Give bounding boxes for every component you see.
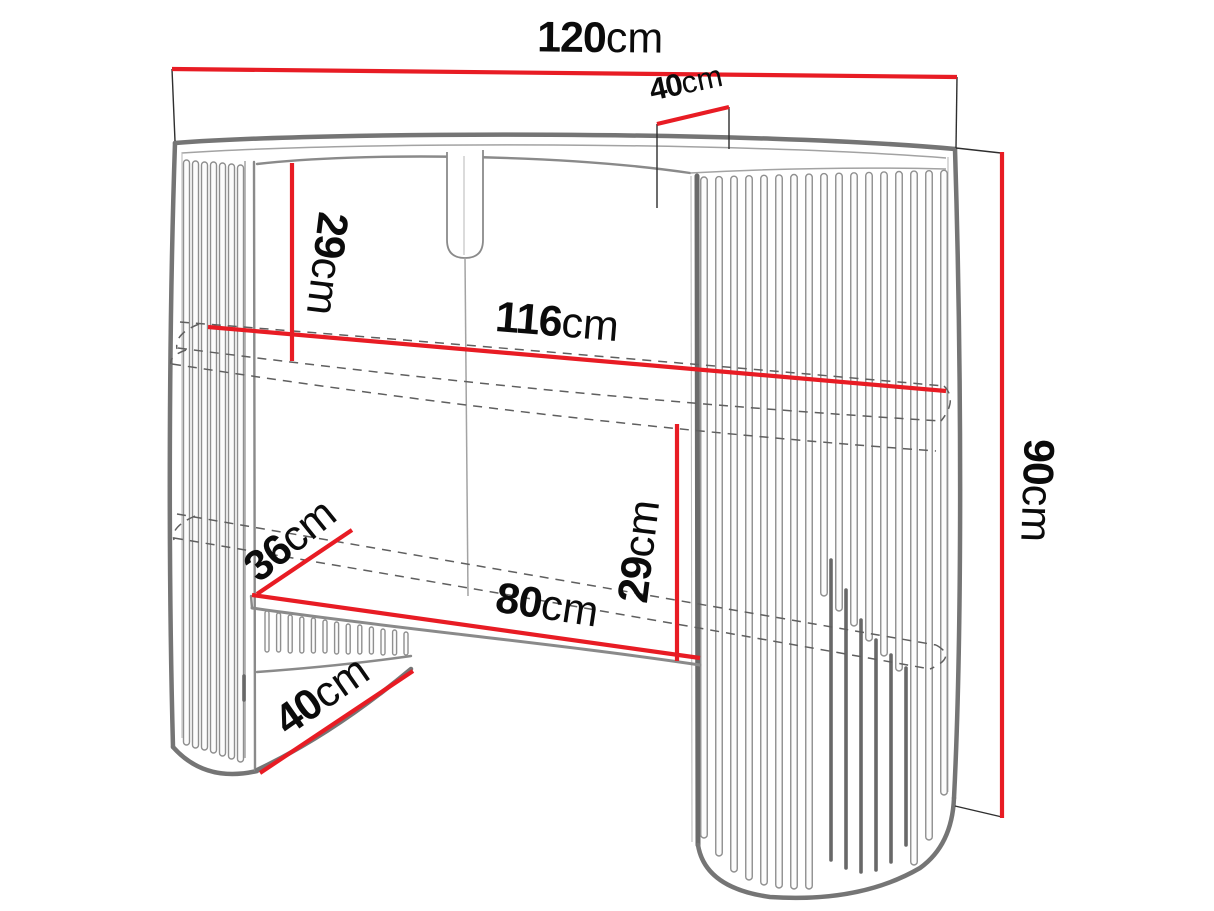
dimension-total-height: 90cm — [955, 148, 1063, 818]
shelf-left-corner — [251, 596, 252, 608]
slat — [404, 632, 408, 655]
arch-slat-group — [265, 611, 408, 655]
top-rim-edge — [175, 135, 955, 149]
slat — [821, 174, 828, 596]
slat — [806, 174, 813, 889]
dimension-total-width: 120cm — [172, 13, 957, 148]
slat — [277, 613, 281, 652]
left-slat-group — [184, 160, 244, 762]
slat — [369, 627, 373, 654]
slat — [941, 170, 948, 795]
console-table-drawing: 120cm 40cm 29cm 116cm 29cm 36cm 80cm 40c… — [0, 0, 1214, 911]
slat — [323, 620, 327, 653]
slat — [335, 622, 339, 654]
slat — [791, 175, 798, 890]
dimension-label: 120cm — [537, 13, 664, 62]
slat — [866, 172, 873, 641]
left-outer-edge — [170, 143, 175, 747]
slat — [288, 615, 292, 653]
top-front-edge — [182, 145, 946, 158]
back-panel — [447, 150, 483, 596]
slat — [701, 177, 708, 838]
slat — [202, 162, 208, 750]
furniture-dimension-diagram: 120cm 40cm 29cm 116cm 29cm 36cm 80cm 40c… — [0, 0, 1214, 911]
slat — [229, 164, 235, 759]
dimension-label: 29cm — [609, 497, 669, 605]
slat — [238, 165, 244, 762]
slat — [300, 617, 304, 653]
dimension-line — [252, 595, 700, 658]
slat — [836, 173, 843, 611]
extension-line — [955, 806, 1002, 817]
dimension-line — [172, 69, 957, 77]
slat — [393, 630, 397, 655]
dimension-label: 36cm — [235, 489, 345, 591]
extension-line — [956, 77, 957, 148]
slat — [358, 625, 362, 654]
slat — [311, 618, 315, 653]
right-inner-edge — [697, 176, 698, 845]
left-inner-edge — [254, 162, 255, 770]
right-pedestal — [691, 149, 960, 898]
back-rail-bottom-edge-right — [690, 168, 946, 173]
dimension-label: 90cm — [1011, 438, 1063, 543]
dimension-line — [657, 107, 729, 124]
slat — [761, 175, 768, 885]
slat — [716, 177, 723, 856]
slat — [896, 172, 903, 672]
slat — [220, 163, 226, 756]
dimension-label: 29cm — [297, 210, 357, 318]
dimension-top-to-shelf: 29cm — [292, 163, 357, 361]
extension-line — [172, 69, 175, 141]
slat — [184, 160, 190, 745]
slat — [265, 611, 269, 652]
dimension-base-depth: 40cm — [260, 646, 413, 773]
right-slat-group — [701, 170, 948, 889]
right-outer-edge — [954, 149, 960, 798]
slat — [193, 161, 199, 748]
dimension-label: 80cm — [493, 574, 602, 637]
slat — [926, 171, 933, 840]
dimension-label: 40cm — [646, 58, 725, 108]
dimension-label: 116cm — [494, 293, 621, 351]
back-panel-seam — [465, 258, 468, 596]
slat — [881, 172, 888, 656]
dimension-shelf-to-base: 29cm — [609, 424, 677, 661]
slat — [911, 171, 918, 865]
slat — [211, 162, 217, 753]
dimension-shelf-depth: 36cm — [235, 489, 352, 594]
slat — [851, 173, 858, 626]
slat — [731, 176, 738, 872]
slat — [776, 175, 783, 888]
slat — [746, 176, 753, 880]
slat — [381, 629, 385, 655]
right-inner-edge-hairline — [691, 176, 692, 842]
extension-line — [956, 148, 1001, 153]
cable-notch — [447, 150, 483, 258]
left-pedestal — [170, 143, 257, 774]
